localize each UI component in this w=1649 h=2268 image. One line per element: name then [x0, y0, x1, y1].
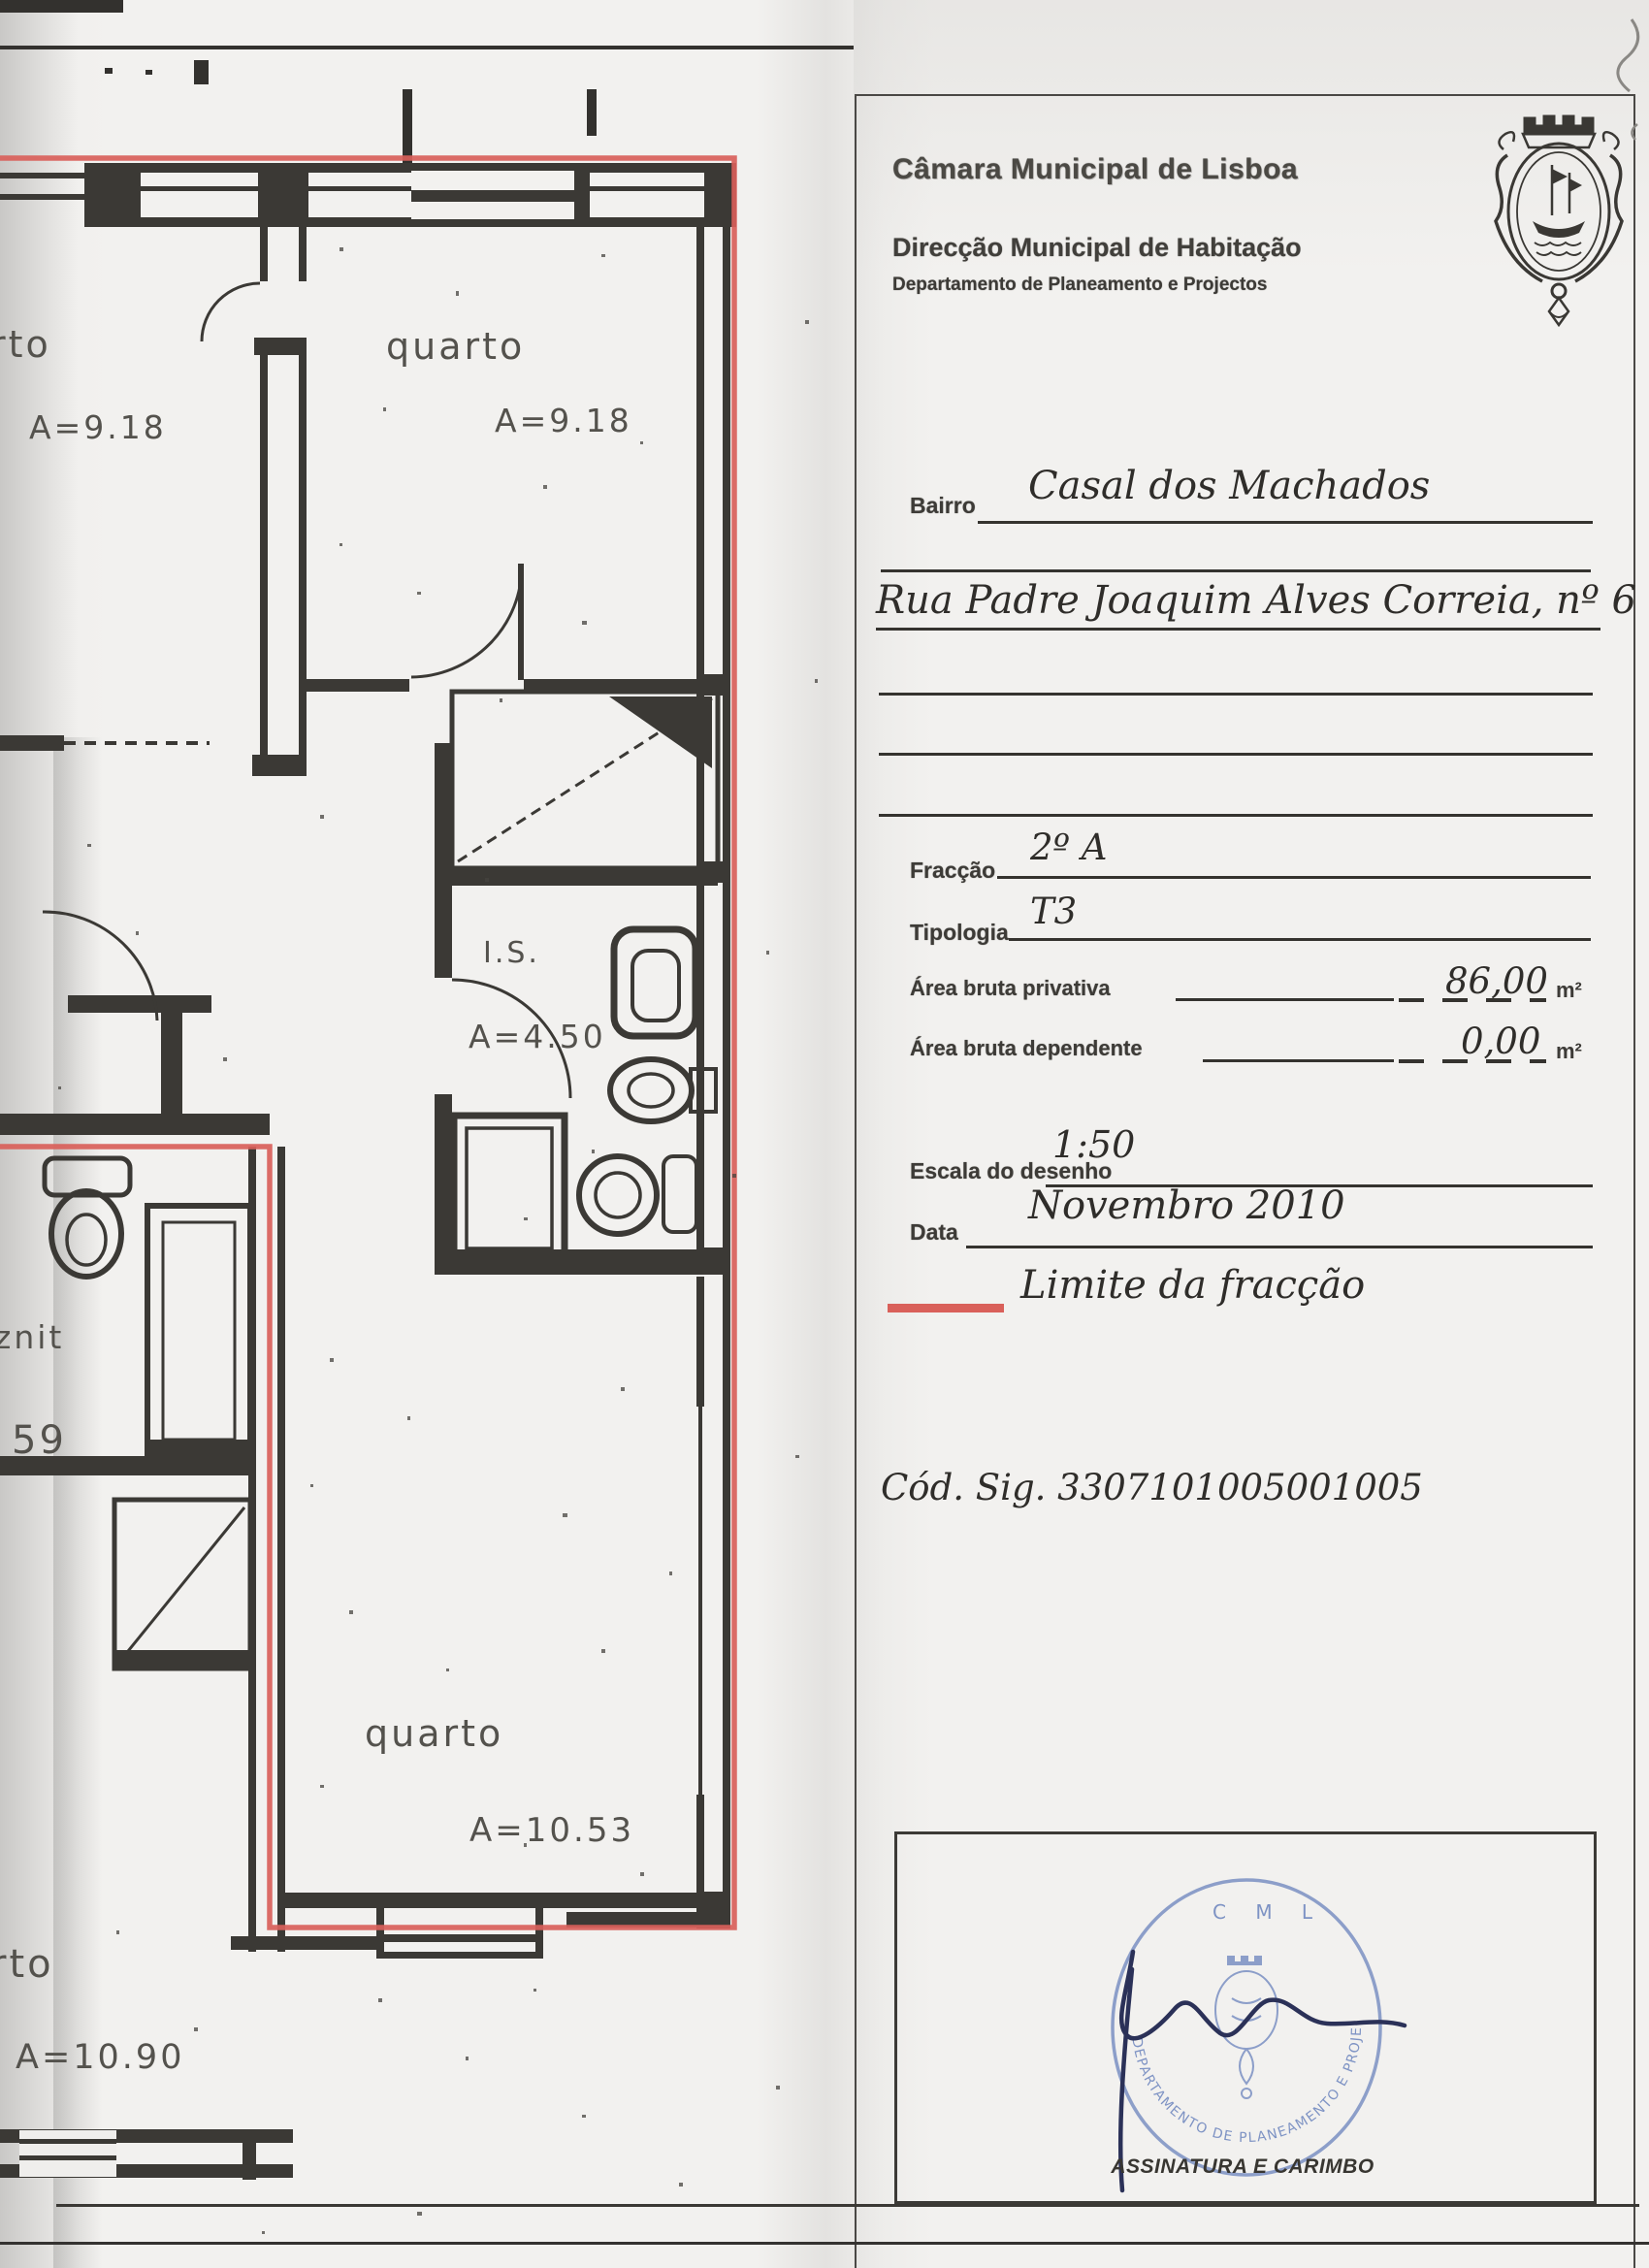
room-label-is: I.S. — [483, 936, 540, 970]
stamp-top-text: C M L — [1212, 1900, 1324, 1924]
room-area: A=4.50 — [469, 1018, 606, 1055]
data-value: Novembro 2010 — [1028, 1183, 1345, 1228]
form-line-empty — [879, 753, 1593, 756]
area-privativa-unit: m² — [1556, 978, 1582, 1003]
cod-sig: Cód. Sig. 3307101005001005 — [881, 1467, 1423, 1508]
area-dependente-label: Área bruta dependente — [910, 1036, 1143, 1061]
room-area: 59 — [12, 1418, 67, 1463]
form-line — [1009, 938, 1591, 941]
room-label-quarto: quarto — [386, 325, 525, 368]
room-labels: rto A=9.18 quarto A=9.18 I.S. A=4.50 zni… — [0, 323, 634, 2077]
header-department: Departamento de Planeamento e Projectos — [892, 275, 1267, 296]
page-bottom-line-2 — [0, 2242, 1649, 2245]
form-line — [1203, 1059, 1394, 1062]
area-privativa-value: 86,00 — [1445, 960, 1548, 1002]
escala-value: 1:50 — [1052, 1123, 1135, 1166]
top-wall — [0, 163, 736, 227]
bairro-value: Casal dos Machados — [1028, 464, 1430, 508]
partition-wall — [252, 227, 307, 776]
area-dependente-unit: m² — [1556, 1039, 1582, 1064]
room-area: A=9.18 — [29, 408, 167, 446]
tipologia-value: T3 — [1030, 891, 1077, 932]
room-area: A=10.53 — [469, 1811, 634, 1850]
form-line — [1176, 998, 1394, 1001]
floorplan-drawing: rto A=9.18 quarto A=9.18 I.S. A=4.50 zni… — [0, 0, 854, 2268]
tipologia-label: Tipologia — [910, 920, 1009, 946]
lisbon-coat-of-arms-icon — [1474, 97, 1639, 340]
legend-red-line — [888, 1304, 1004, 1312]
page-bottom-line — [56, 2204, 1639, 2207]
form-line — [978, 521, 1593, 524]
data-label: Data — [910, 1219, 958, 1246]
form-line-empty — [881, 569, 1591, 572]
room-label-quarto-bottom: quarto — [365, 1712, 503, 1755]
neighbour-bathroom-fixtures — [45, 1158, 250, 1456]
area-privativa-label: Área bruta privativa — [910, 976, 1111, 1001]
form-line — [997, 876, 1591, 879]
form-line — [966, 1246, 1593, 1248]
room-area: A=9.18 — [495, 402, 632, 439]
form-line — [876, 628, 1600, 631]
door-arc — [202, 283, 260, 341]
header-direction: Direcção Municipal de Habitação — [892, 233, 1302, 263]
form-line-empty — [879, 814, 1593, 817]
door-arc — [411, 566, 522, 677]
address-value: Rua Padre Joaquim Alves Correia, nº 6 — [876, 578, 1636, 623]
room-label-quarto-cut-bottom: rto — [0, 1942, 54, 1987]
room-area: A=10.90 — [16, 2038, 184, 2077]
area-dependente-value: 0,00 — [1461, 1021, 1540, 1062]
room-label-quarto-cut: rto — [0, 323, 51, 366]
bairro-label: Bairro — [910, 493, 976, 519]
fraccao-label: Fracção — [910, 858, 995, 884]
form-line-empty — [879, 693, 1593, 696]
right-wall — [696, 163, 730, 1928]
bathroom-fixtures — [454, 929, 716, 1261]
legend-label: Limite da fracção — [1020, 1263, 1365, 1308]
room-label-sanit-cut: znit — [0, 1318, 64, 1356]
header-municipality: Câmara Municipal de Lisboa — [892, 153, 1298, 186]
signature-caption: ASSINATURA E CARIMBO — [894, 2155, 1591, 2179]
fraccao-value: 2º A — [1030, 826, 1107, 868]
scanned-floorplan-document: rto A=9.18 quarto A=9.18 I.S. A=4.50 zni… — [0, 0, 1649, 2268]
